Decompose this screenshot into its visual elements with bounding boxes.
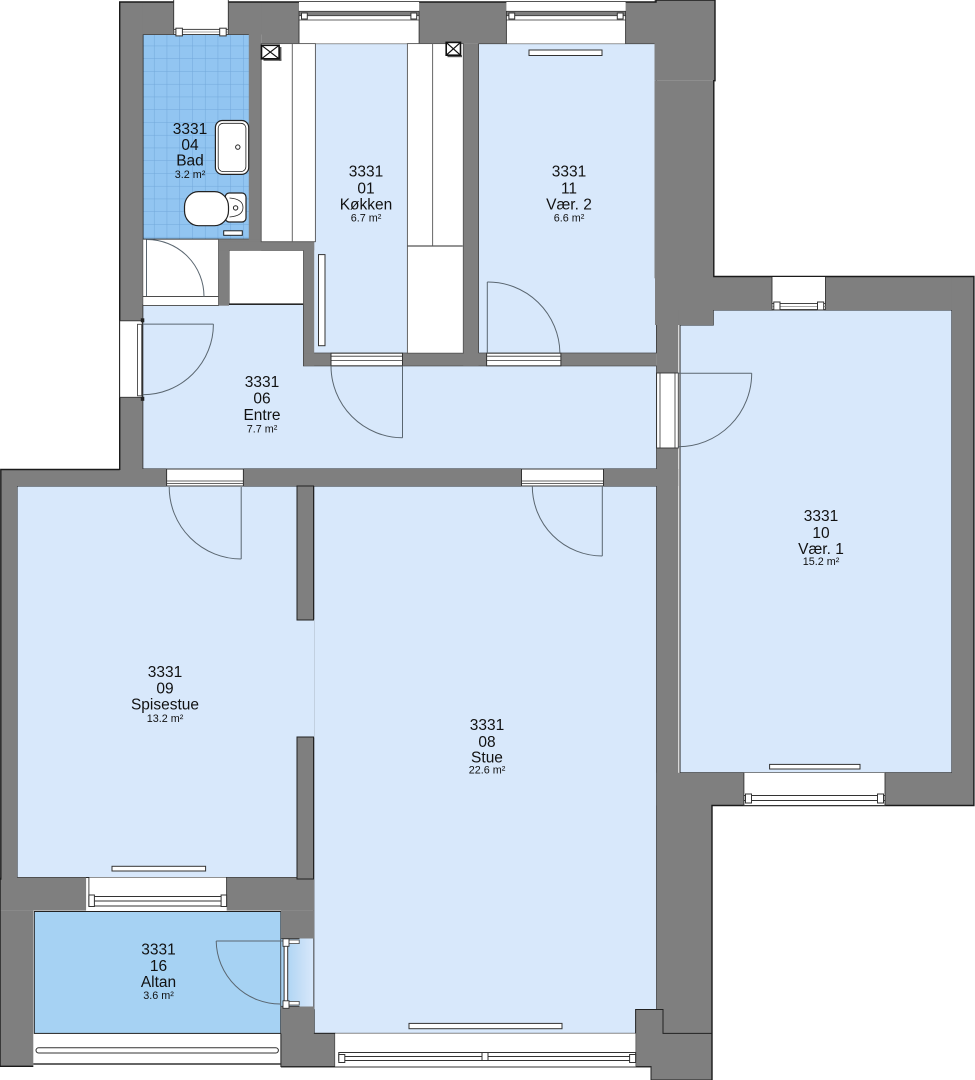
svg-text:3331: 3331 [148,664,182,681]
svg-text:22.6 m²: 22.6 m² [469,765,506,777]
svg-text:Bad: Bad [176,153,204,170]
svg-text:16: 16 [150,958,167,975]
svg-text:15.2 m²: 15.2 m² [803,556,840,568]
svg-text:7.7 m²: 7.7 m² [247,424,278,436]
svg-text:04: 04 [181,137,199,154]
svg-text:3331: 3331 [173,121,207,138]
svg-text:10: 10 [812,525,830,542]
svg-text:08: 08 [478,734,495,751]
svg-text:3331: 3331 [141,942,175,959]
svg-text:Altan: Altan [141,974,176,991]
svg-text:Entre: Entre [243,407,280,424]
svg-text:Vær. 2: Vær. 2 [546,197,592,214]
svg-text:3331: 3331 [804,508,838,525]
svg-text:6.7 m²: 6.7 m² [351,213,382,225]
svg-text:Køkken: Køkken [340,197,393,214]
svg-text:06: 06 [253,391,270,408]
svg-text:01: 01 [357,181,374,198]
svg-text:3.6 m²: 3.6 m² [143,990,174,1002]
svg-text:3331: 3331 [349,164,383,181]
svg-text:3331: 3331 [245,374,279,391]
svg-text:Spisestue: Spisestue [131,697,199,714]
svg-text:3.2 m²: 3.2 m² [175,169,206,181]
svg-text:11: 11 [561,181,577,198]
svg-text:6.6 m²: 6.6 m² [554,213,585,225]
svg-text:09: 09 [156,681,173,698]
svg-text:3331: 3331 [552,164,586,181]
svg-text:13.2 m²: 13.2 m² [147,713,184,725]
svg-text:3331: 3331 [470,717,504,734]
